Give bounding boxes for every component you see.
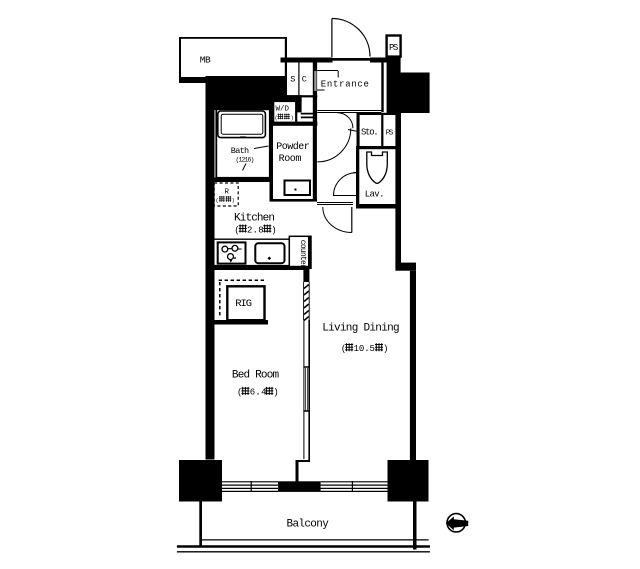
svg-text:Kitchen: Kitchen xyxy=(234,213,274,225)
svg-text:Entrance: Entrance xyxy=(321,80,370,90)
svg-text:(1216): (1216) xyxy=(236,156,254,163)
svg-text:counter: counter xyxy=(298,240,307,269)
svg-text:): ) xyxy=(232,197,235,204)
svg-text:MB: MB xyxy=(200,54,211,65)
svg-text:Room: Room xyxy=(279,154,302,165)
svg-text:Powder: Powder xyxy=(276,141,310,153)
svg-text:(: ( xyxy=(341,344,345,354)
svg-text:Living Dining: Living Dining xyxy=(322,322,399,334)
svg-text:PS: PS xyxy=(389,43,398,53)
svg-text:): ) xyxy=(271,225,275,235)
svg-text:C: C xyxy=(302,74,307,84)
svg-text:Bed Room: Bed Room xyxy=(232,370,280,382)
svg-text:S: S xyxy=(290,74,295,84)
svg-text:6.4: 6.4 xyxy=(250,388,267,398)
svg-text:2.8: 2.8 xyxy=(247,225,264,235)
svg-text:10.5: 10.5 xyxy=(354,344,375,354)
svg-text:): ) xyxy=(273,388,277,398)
svg-text:(: ( xyxy=(234,225,238,235)
svg-text:): ) xyxy=(383,344,387,354)
svg-text:(: ( xyxy=(216,197,219,204)
svg-text:Bath: Bath xyxy=(231,146,249,156)
svg-text:(: ( xyxy=(237,388,241,398)
svg-text:Lav.: Lav. xyxy=(365,189,384,199)
svg-text:W/D: W/D xyxy=(276,106,290,114)
svg-text:Balcony: Balcony xyxy=(287,518,330,530)
svg-text:R: R xyxy=(225,189,230,197)
svg-text:Sto.: Sto. xyxy=(361,128,377,138)
svg-text:(: ( xyxy=(275,115,278,122)
svg-text:): ) xyxy=(291,115,294,122)
svg-text:RIG: RIG xyxy=(235,298,251,310)
